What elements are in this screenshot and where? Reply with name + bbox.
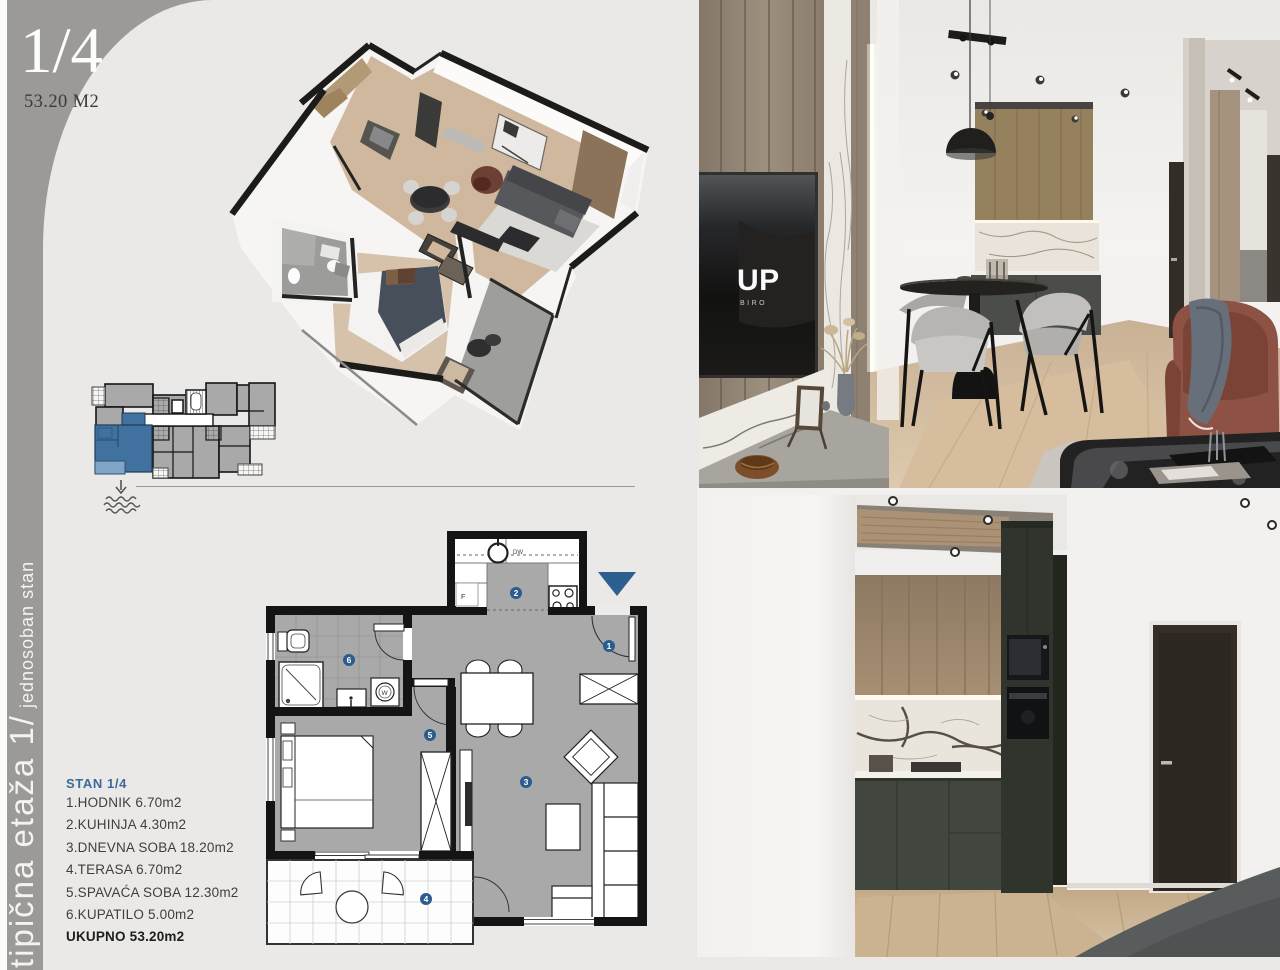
svg-text:F: F: [461, 594, 465, 601]
svg-text:1: 1: [607, 641, 612, 651]
svg-text:3: 3: [524, 777, 529, 787]
svg-text:BIRO: BIRO: [740, 300, 767, 307]
svg-text:W: W: [382, 690, 389, 697]
svg-text:2: 2: [514, 588, 519, 598]
svg-text:5: 5: [428, 730, 433, 740]
svg-text:4: 4: [424, 894, 429, 904]
svg-text:DW: DW: [513, 550, 523, 556]
svg-text:6: 6: [347, 655, 352, 665]
svg-text:UP: UP: [737, 264, 780, 297]
